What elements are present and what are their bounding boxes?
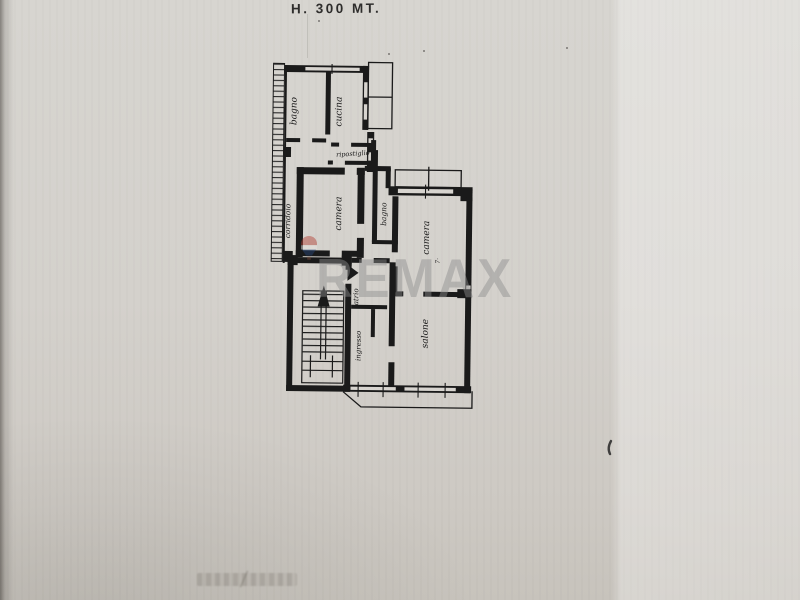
remax-watermark-text: REMAX: [316, 247, 514, 309]
balcony-top-right: [368, 62, 393, 128]
balcony-right-wing: [395, 166, 461, 191]
room-label-salone: salone: [421, 319, 431, 349]
room-label-ingresso: ingresso: [354, 331, 362, 361]
faint-stamp: [197, 573, 297, 586]
room-label-corridoio: corridoio: [283, 203, 292, 238]
room-label-ripostiglio: ripostiglio: [336, 149, 370, 159]
room-label-camera-middle: camera: [334, 197, 344, 231]
ink-mark: [609, 441, 611, 454]
room-label-bagno-right: bagno: [379, 202, 388, 226]
room-label-bagno-top: bagno: [289, 96, 299, 125]
floor-plan-drawing: bagno cucina ripostiglio corridoio camer…: [0, 0, 800, 600]
bottom-facade: [343, 382, 472, 409]
faint-stamp-slash: [239, 570, 248, 587]
remax-watermark: REMAX: [301, 236, 514, 309]
scanned-floor-plan-page: H. 300 MT.: [0, 0, 800, 600]
room-label-cucina: cucina: [334, 97, 344, 127]
